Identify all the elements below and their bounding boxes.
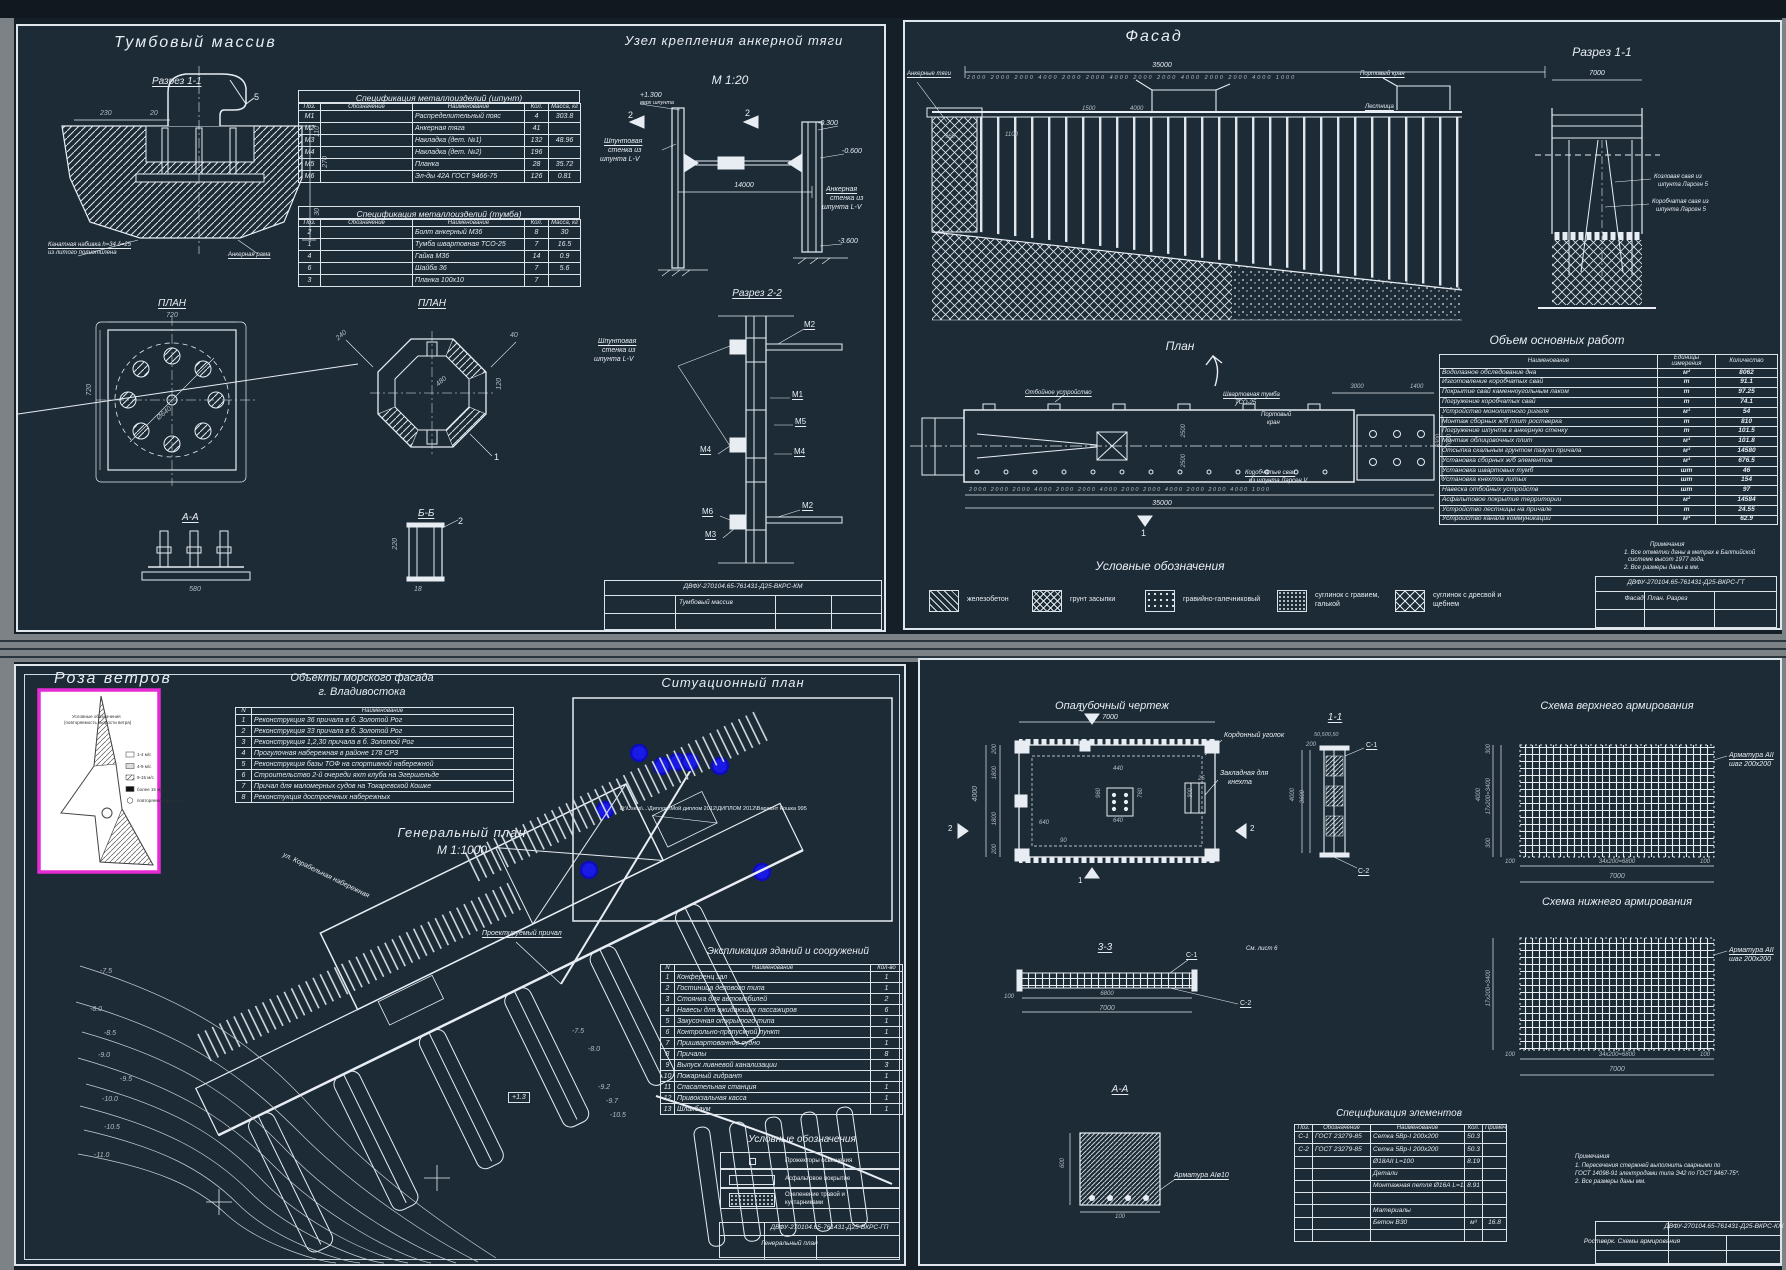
section-1-1-title: Разрез 1-1 — [1572, 46, 1631, 60]
dim-label: 7000 — [1589, 70, 1605, 78]
contour-label: -9.5 — [120, 1076, 132, 1084]
dim-label: 100 — [1004, 994, 1014, 1001]
facade-title: Фасад — [1125, 28, 1182, 46]
table-row: 5Реконструкция базы ТОФ на спортивной на… — [236, 759, 514, 770]
table-cell: Установка сборных ж/б элементов — [1440, 456, 1658, 466]
table-cell: С-2 — [1295, 1144, 1313, 1156]
dim-label: 17х200=3400 — [1486, 970, 1493, 1007]
table-cell: 4 — [525, 111, 549, 123]
table-row: Покрытие свай каменноугольным лакомт97.2… — [1440, 388, 1778, 398]
table-cell: 6 — [299, 263, 321, 275]
table-cell: 14 — [525, 251, 549, 263]
table-cell: 3 — [299, 275, 321, 287]
title-block: ДВФУ-270104.65-761431-Д25-ВКРС-КЖ Ростве… — [1595, 1221, 1781, 1264]
table-header-row: Поз.ОбозначениеНаименованиеКол.Масса, кг — [299, 104, 581, 111]
anchor-wall-label: Анкерная — [826, 186, 857, 194]
table-cell: М3 — [299, 135, 321, 147]
weld-mark: М6 — [702, 507, 713, 516]
table-row: 7Причал для маломерных судов на Токаревс… — [236, 781, 514, 792]
table-cell: Выпуск ливневой канализации — [675, 1060, 871, 1071]
table-row: 6Контрольно-пропускной пункт1 — [661, 1027, 903, 1038]
dim-label: 640 — [1039, 820, 1049, 827]
dim-label: 120 — [496, 378, 504, 390]
dim-label: 220 — [392, 538, 400, 550]
legend-item: железобетон — [967, 596, 1009, 604]
table-row: Устройство лестницы на причалет24.55 — [1440, 505, 1778, 515]
plan-square-title: ПЛАН — [158, 298, 186, 310]
table-cell: 1 — [661, 972, 675, 983]
anchor-frame-note: Анкерная рама — [228, 252, 270, 259]
dim-label: 3000 — [1350, 384, 1363, 391]
sheet-name: Тумбовый массив — [641, 599, 771, 606]
table-cell: Пожарный гидрант — [675, 1071, 871, 1082]
bottom-reinforcement-title: Схема нижнего армирования — [1542, 896, 1692, 909]
section-1-1-label: Разрез 1-1 — [152, 76, 202, 88]
rose-legend-item: 1-4 м/с — [137, 752, 151, 757]
table-cell: 54 — [1716, 407, 1778, 417]
buildings-explication-table: NНаименованиеКол-во1Конференц зал12Гости… — [660, 964, 903, 1115]
see-sheet-note: См. лист 6 — [1246, 946, 1278, 953]
table-cell: Гостиница делового типа — [675, 983, 871, 994]
dim-label: 760 — [1138, 788, 1145, 798]
column-header: Наименование — [1440, 355, 1658, 369]
table-row — [1295, 1193, 1507, 1205]
table-row: Установка швартовых тумбшт46 — [1440, 466, 1778, 476]
table-row: Погружение коробчатых свайт74.1 — [1440, 397, 1778, 407]
table-cell: 4 — [299, 251, 321, 263]
table-cell — [1483, 1144, 1507, 1156]
sheet-pile-wall-label2: шпунта L-V — [594, 356, 634, 364]
table-row: 10Пожарный гидрант1 — [661, 1071, 903, 1082]
table-cell: Погружение шпунта в анкерную стенку — [1440, 427, 1658, 437]
table-cell: Шайба 36 — [413, 263, 525, 275]
dim-label: 34х200=6800 — [1599, 859, 1636, 866]
table-cell: Причалы — [675, 1049, 871, 1060]
contour-label: -10.5 — [610, 1112, 626, 1120]
table-cell — [1295, 1205, 1313, 1217]
table-cell: 101.8 — [1716, 437, 1778, 447]
table-cell: 14580 — [1716, 446, 1778, 456]
weld-mark: М4 — [700, 445, 711, 454]
divider-groove — [0, 648, 1786, 650]
contour-label: -9.7 — [606, 1098, 618, 1106]
floodlight-icon — [749, 1158, 756, 1165]
table-cell: 35.72 — [549, 159, 581, 171]
section-flag-2: 2 — [1250, 824, 1254, 833]
bl-legend-title: Условные обозначения — [748, 1134, 856, 1146]
table-cell: Эл-ды 42А ГОСТ 9466-75 — [413, 171, 525, 183]
table-cell — [1465, 1168, 1483, 1180]
table-row: С-1ГОСТ 23279-85Сетка 5Вр-I 200х20050.3 — [1295, 1132, 1507, 1144]
document-number: ДВФУ-270104.65-761431-Д25-ВКРС-КЖ — [1632, 1223, 1786, 1230]
weld-mark: М1 — [792, 390, 803, 399]
section-flag-1: 1 — [1078, 704, 1082, 713]
hatch-cross-coarse-icon — [1395, 590, 1425, 612]
legend-item: щебнем — [1433, 601, 1459, 609]
dim-chain-label: 2000 2000 2000 4000 2000 2000 4000 2000 … — [967, 75, 1296, 81]
table-row: 1Конференц зал1 — [661, 972, 903, 983]
column-header: Обозначение — [321, 220, 413, 227]
dim-label: 100 — [1115, 1214, 1125, 1221]
table-row: 4Навесы для ожидающих пассажиров6 — [661, 1005, 903, 1016]
sheet-name: Ростверк. Схемы армирования — [1540, 1238, 1724, 1245]
table-cell: 24.55 — [1716, 505, 1778, 515]
table-cell: Гайка М36 — [413, 251, 525, 263]
table-cell: 6 — [871, 1005, 903, 1016]
elements-spec-title: Спецификация элементов — [1336, 1108, 1462, 1120]
table-cell: 8 — [525, 227, 549, 239]
divider-groove — [0, 640, 1786, 642]
spec-tumba-title: Спецификация металлоизделий (тумба) — [298, 206, 580, 219]
mesh-mark: С-2 — [1358, 868, 1369, 876]
table-row: 3Стоянка для автомобилей2 — [661, 994, 903, 1005]
table-cell: 48.96 — [549, 135, 581, 147]
table-cell: 676.5 — [1716, 456, 1778, 466]
legend-item: гравийно-галечниковый — [1183, 596, 1260, 604]
table-cell — [549, 147, 581, 159]
dim-label: 2500 — [1181, 454, 1188, 467]
dim-label: 14000 — [734, 182, 753, 190]
table-row: 1Реконструкция 36 причала в б. Золотой Р… — [236, 715, 514, 726]
table-cell: м³ — [1658, 446, 1716, 456]
elevation-label: +1.300 — [640, 92, 662, 100]
table-cell: Пришвартованное судно — [675, 1038, 871, 1049]
legend-title: Условные обозначения — [1095, 560, 1224, 574]
section-bb-drawing — [407, 520, 458, 581]
dim-label: 640 — [1113, 818, 1123, 825]
table-cell: 9 — [661, 1060, 675, 1071]
dim-label: 4000 — [1476, 788, 1483, 801]
table-row: М1Распределительный пояс4303.8 — [299, 111, 581, 123]
designed-pier-label: Проектируемый причал — [482, 930, 562, 938]
table-cell: М2 — [299, 123, 321, 135]
dim-label: 90 — [1060, 838, 1067, 845]
section-1-1-strip — [1302, 746, 1364, 868]
works-volume-title: Объем основных работ — [1490, 334, 1625, 348]
legend-row: Озеленение травой и кустарниками — [720, 1188, 900, 1209]
table-cell: шт — [1658, 486, 1716, 496]
dim-label: 300 — [1486, 838, 1493, 848]
legend-row: Прожекторы освещения — [720, 1152, 900, 1169]
table-cell — [1371, 1229, 1465, 1241]
dim-label: 720 — [86, 384, 94, 396]
section-aa-block — [1070, 1133, 1174, 1212]
box-piles-label2: из шпунта Ларсен V — [1249, 478, 1307, 485]
table-row: 8Причалы8 — [661, 1049, 903, 1060]
table-cell: 3 — [236, 737, 252, 748]
table-cell — [1465, 1193, 1483, 1205]
table-cell — [1295, 1168, 1313, 1180]
column-header: Обозначение — [1313, 1125, 1371, 1132]
table-cell — [1483, 1168, 1507, 1180]
sheet-pile-wall-label2: Шпунтовая — [598, 338, 636, 346]
table-cell: Строительство 2-й очереди яхт клуба на Э… — [252, 770, 514, 781]
anchor-wall-label: стенка из — [830, 195, 863, 203]
anchor-node-title: Узел крепления анкерной тяги — [625, 34, 844, 49]
note-line: 2. Все размеры даны в мм. — [1624, 565, 1700, 572]
crane-label2b: кран — [1267, 420, 1280, 427]
table-cell: 41 — [525, 123, 549, 135]
table-cell: 126 — [525, 171, 549, 183]
facade-drawing — [917, 66, 1545, 320]
sheet-pile-wall-label: шпунта L-V — [600, 156, 640, 164]
table-cell: М6 — [299, 171, 321, 183]
table-cell: 101.5 — [1716, 427, 1778, 437]
weld-mark: М3 — [705, 530, 716, 539]
column-header: Наименование — [413, 104, 525, 111]
hatch-diagonal-icon — [929, 590, 959, 612]
table-cell — [1313, 1193, 1371, 1205]
dim-label: 35000 — [1152, 500, 1171, 508]
table-cell: 97 — [1716, 486, 1778, 496]
spec-shpunt-title: Спецификация металлоизделий (шпунт) — [298, 90, 580, 103]
table-cell: 6 — [236, 770, 252, 781]
table-cell: Реконструкция 36 причала в б. Золотой Ро… — [252, 715, 514, 726]
table-cell: 0.9 — [549, 251, 581, 263]
spot-elevation: +1.3 — [508, 1092, 530, 1103]
table-cell: 3 — [661, 994, 675, 1005]
table-row: Бетон В30м³16.8 — [1295, 1217, 1507, 1229]
cross-section-1-1-drawing — [1535, 80, 1660, 308]
table-cell — [1313, 1205, 1371, 1217]
works-volume-table: НаименованиеЕдиницы измеренияКоличествоВ… — [1439, 354, 1778, 525]
rose-legend-title2: (повторяемость скорости ветра) — [64, 720, 131, 725]
bollard-label: Швартовная тумба — [1223, 392, 1280, 399]
weld-mark: М2 — [804, 320, 815, 329]
dim-label: 20 — [150, 110, 158, 118]
rebar-a1-label: Арматура АIø10 — [1174, 1172, 1229, 1180]
rebar-label: Арматура АII — [1729, 752, 1774, 760]
panel-bollard-massif: Тумбовый массив Разрез 1-1 230 20 110 27… — [16, 24, 886, 632]
hatch-dots-icon — [1145, 590, 1175, 612]
table-row: Монтаж облицовочных плитм³101.8 — [1440, 437, 1778, 447]
table-cell: м³ — [1658, 456, 1716, 466]
objects-title2: г. Владивостока — [319, 686, 406, 699]
table-row: М3Накладка (дет. №1)13248.96 — [299, 135, 581, 147]
table-cell — [321, 275, 413, 287]
tl-sheet-title: Тумбовый массив — [114, 34, 277, 52]
table-row: Детали — [1295, 1168, 1507, 1180]
table-cell: 2 — [299, 227, 321, 239]
table-cell: Планка 100х10 — [413, 275, 525, 287]
table-cell — [321, 159, 413, 171]
dim-label: 200 — [1306, 742, 1316, 749]
table-cell: м³ — [1658, 515, 1716, 525]
title-block: ДВФУ-270104.65-761431-Д25-ВКРС-ГП Генера… — [719, 1222, 900, 1258]
table-row: Отсыпка скальным грунтом пазухи причалам… — [1440, 446, 1778, 456]
table-cell: Прогулочная набережная в районе 178 СРЗ — [252, 748, 514, 759]
table-cell: Устройство монолитного ригеля — [1440, 407, 1658, 417]
cordon-angle-label: Кордонный уголок — [1224, 732, 1284, 740]
table-row: М5Планка2835.72 — [299, 159, 581, 171]
dim-label: 300 — [1486, 744, 1493, 754]
table-cell: 1 — [871, 1071, 903, 1082]
section-1-1-label: 1-1 — [1328, 712, 1342, 724]
pile-label: шпунта Ларсен 5 — [1656, 207, 1706, 214]
table-cell: 810 — [1716, 417, 1778, 427]
objects-title: Объекты морского фасада — [290, 672, 433, 685]
spec-shpunt-table: Поз.ОбозначениеНаименованиеКол.Масса, кг… — [298, 103, 581, 183]
table-cell: 1 — [299, 239, 321, 251]
table-cell — [1483, 1181, 1507, 1193]
table-cell: М4 — [299, 147, 321, 159]
table-cell: Бетон В30 — [1371, 1217, 1465, 1229]
title-block: ДВФУ-270104.65-761431-Д25-ВКРС-ГТ Фасад.… — [1595, 576, 1777, 628]
table-cell: Реконструкция 33 причала в б. Золотой Ро… — [252, 726, 514, 737]
table-cell: м³ — [1465, 1217, 1483, 1229]
table-cell: 8 — [871, 1049, 903, 1060]
plan-square-drawing — [96, 316, 258, 486]
table-cell — [321, 251, 413, 263]
table-cell: С-1 — [1295, 1132, 1313, 1144]
table-cell — [1371, 1193, 1465, 1205]
hatch-fine-dots-icon — [1277, 590, 1307, 612]
sea-facade-objects-table: NНаименование1Реконструкция 36 причала в… — [235, 707, 514, 803]
contour-label: -10.0 — [102, 1096, 118, 1104]
column-header: Кол-во — [871, 965, 903, 972]
table-cell: 12 — [661, 1093, 675, 1104]
dim-label: 7000 — [1609, 873, 1625, 881]
anchor-wall-label: шпунта L-V — [822, 204, 862, 212]
table-cell: Устройство канала коммуникаций — [1440, 515, 1658, 525]
table-cell: 1 — [871, 983, 903, 994]
table-cell: 11 — [661, 1082, 675, 1093]
table-cell: 6 — [661, 1027, 675, 1038]
table-cell — [1483, 1205, 1507, 1217]
dim-chain-label: 2000 2000 2000 4000 2000 2000 4000 2000 … — [969, 487, 1271, 493]
table-cell — [1313, 1168, 1371, 1180]
column-header: Наименование — [413, 220, 525, 227]
panel-facade: Фасад 35000 2000 2000 2000 4000 2000 200… — [903, 20, 1782, 630]
ladder-label: Лестница — [1365, 104, 1394, 111]
crane-label: Портовый кран — [1360, 71, 1405, 78]
table-cell: 1 — [871, 1082, 903, 1093]
table-header-row: НаименованиеЕдиницы измеренияКоличество — [1440, 355, 1778, 369]
dim-label: 230 — [100, 110, 112, 118]
table-row: 4Прогулочная набережная в районе 178 СРЗ — [236, 748, 514, 759]
note-line: 1. Все отметки даны в метрах в Балтийско… — [1624, 550, 1755, 557]
section-2-2-drawing — [678, 316, 842, 563]
table-cell: Водолазное обследование дна — [1440, 368, 1658, 378]
table-cell: Накладка (дет. №2) — [413, 147, 525, 159]
dim-label: 50,500,50 — [1314, 732, 1338, 738]
general-plan-title: Генеральный план — [397, 826, 526, 841]
table-cell: Распределительный пояс — [413, 111, 525, 123]
table-cell — [321, 111, 413, 123]
legend-item: кустарниками — [785, 1200, 823, 1207]
table-cell: Стоянка для автомобилей — [675, 994, 871, 1005]
scale-label: М 1:20 — [712, 74, 749, 88]
section-flag-1: 1 — [1078, 876, 1082, 885]
table-cell: 8.19 — [1465, 1156, 1483, 1168]
rose-legend-item: повторяемость штиля — [137, 798, 183, 803]
bollard-embed-label: Закладная для — [1220, 770, 1268, 778]
section-aa-label: А-А — [1112, 1084, 1129, 1096]
dim-label: 35000 — [1152, 62, 1171, 70]
table-row: 4Гайка М36140.9 — [299, 251, 581, 263]
contour-label: -7.5 — [100, 968, 112, 976]
table-cell: 3 — [871, 1060, 903, 1071]
table-cell: 303.8 — [549, 111, 581, 123]
table-cell — [1313, 1229, 1371, 1241]
table-cell: м³ — [1658, 407, 1716, 417]
bollard-label2: ТСО-25 — [1235, 400, 1256, 407]
table-cell: М5 — [299, 159, 321, 171]
table-cell — [1483, 1229, 1507, 1241]
plan-octagon-title: ПЛАН — [418, 298, 446, 310]
table-cell: Устройство лестницы на причале — [1440, 505, 1658, 515]
table-cell: Анкерная тяга — [413, 123, 525, 135]
legend-item: Прожекторы освещения — [785, 1158, 852, 1165]
section-flag-2: 2 — [948, 824, 952, 833]
dim-label: 100 — [1700, 1052, 1710, 1059]
table-cell: Реконструкция 1,2,30 причала в б. Золото… — [252, 737, 514, 748]
dim-label: 6800 — [1100, 991, 1113, 998]
table-cell — [1483, 1156, 1507, 1168]
weld-mark: М5 — [795, 417, 806, 426]
table-cell: т — [1658, 378, 1716, 388]
column-header: Масса, кг — [549, 220, 581, 227]
table-cell — [1483, 1193, 1507, 1205]
general-plan-scale: М 1:1000 — [437, 844, 487, 858]
legend-item: Озеленение травой и — [785, 1192, 845, 1199]
dim-label: 1800 — [992, 812, 999, 825]
table-cell — [321, 147, 413, 159]
table-cell: Навесы для ожидающих пассажиров — [675, 1005, 871, 1016]
rope-packing-note2: из литого полиэтилена — [48, 250, 117, 257]
table-row: 7Пришвартованное судно1 — [661, 1038, 903, 1049]
table-cell — [549, 275, 581, 287]
dim-label: 1100 — [1005, 132, 1018, 139]
table-row: Водолазное обследование днам²8062 — [1440, 368, 1778, 378]
dim-label: 4000 — [1290, 788, 1297, 801]
file-path-text: D:\Users\...\Диплом\Мой диплом 2012\ДИПЛ… — [620, 806, 807, 812]
dim-label: 4000 — [1130, 106, 1143, 113]
table-cell: м³ — [1658, 437, 1716, 447]
elevation-note: верх шпунта — [640, 100, 674, 106]
column-header: N — [236, 708, 252, 715]
table-row: 6Шайба 3675.6 — [299, 263, 581, 275]
crane-label2: Портовый — [1261, 412, 1291, 419]
pile-label: шпунта Ларсен 5 — [1658, 182, 1708, 189]
table-cell: 132 — [525, 135, 549, 147]
table-cell: Реконструкция базы ТОФ на спортивной наб… — [252, 759, 514, 770]
greenery-swatch-icon — [729, 1193, 775, 1207]
dim-label: 100 — [1700, 859, 1710, 866]
mesh-mark: С-1 — [1186, 952, 1197, 960]
table-cell: Детали — [1371, 1168, 1465, 1180]
table-cell — [549, 123, 581, 135]
table-cell: 7 — [525, 275, 549, 287]
dim-label: 100 — [1505, 859, 1515, 866]
contour-label: -8.0 — [588, 1046, 600, 1054]
flag-2: 2 — [745, 108, 750, 118]
table-cell: 5.6 — [549, 263, 581, 275]
section-aa-label: А-А — [182, 512, 199, 524]
table-cell: Причал для маломерных судов на Токаревск… — [252, 781, 514, 792]
table-row: Изготовление коробчатых свайт91.1 — [1440, 378, 1778, 388]
sheet-pile-wall-label: Шпунтовая — [604, 138, 642, 146]
dim-label: 200 — [992, 744, 999, 754]
panel-general-plan: Роза ветров Условные обозначения (повтор… — [14, 664, 906, 1266]
note-line: системе высот 1977 года. — [1628, 557, 1705, 564]
dim-label: 200 — [992, 844, 999, 854]
table-cell — [1295, 1193, 1313, 1205]
rose-legend-item: более 15 м/с — [137, 787, 164, 792]
table-cell: ГОСТ 23279-85 — [1313, 1132, 1371, 1144]
table-cell: Привокзальная касса — [675, 1093, 871, 1104]
column-header: Масса, кг — [549, 104, 581, 111]
